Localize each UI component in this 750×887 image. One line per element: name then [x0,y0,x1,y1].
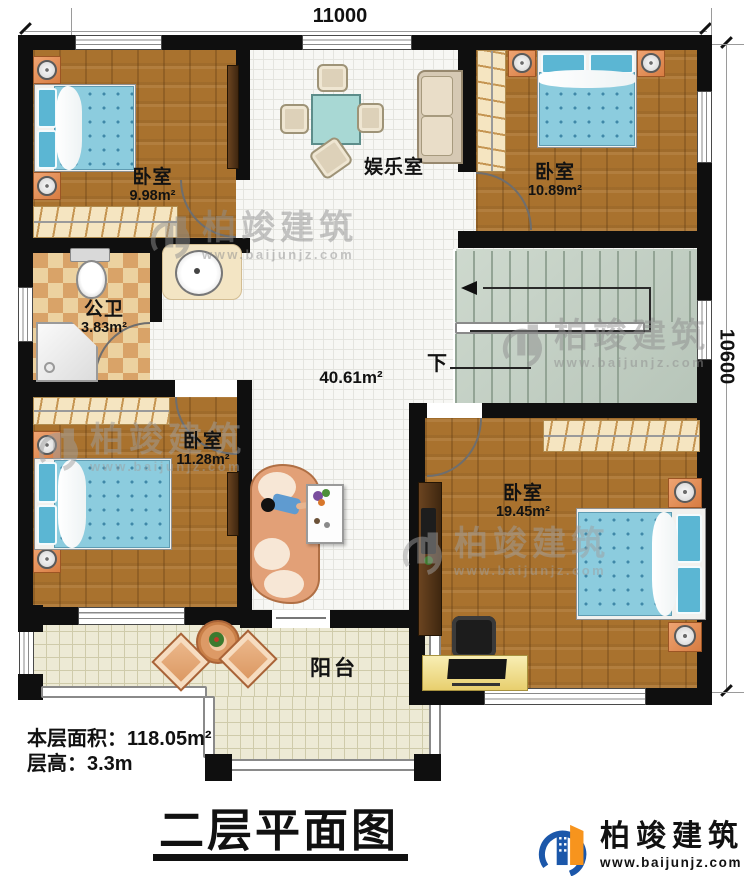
lamp-icon [37,60,57,80]
stair-handrail [455,322,645,334]
stair-path-line [649,287,651,332]
room-name: 卧室 [148,432,258,453]
pillow [676,514,702,563]
dimension-line-top [25,31,707,32]
brand-url: www.baijunjz.com [600,855,744,870]
pillow [37,462,57,503]
desk-plant-icon [424,556,433,565]
brand-block: 柏竣建筑 www.baijunjz.com [536,820,744,876]
room-area: 19.45m² [468,505,578,521]
hall-area-label: 40.61m² [305,369,397,387]
room-area: 9.98m² [100,189,205,205]
dimension-ext-line [712,44,744,45]
bedroom-br-door-opening [427,403,482,418]
title-underline [153,854,408,861]
basin-drain-icon [194,268,200,274]
room-area: 11.28m² [148,453,258,469]
stairs-down-line [450,367,531,369]
wardrobe [543,420,700,452]
sofa-cushion [421,76,453,116]
office-chair [452,616,496,658]
window [697,300,712,360]
wardrobe [33,397,170,425]
person-head [261,498,275,512]
dimension-tick-icon [699,22,712,35]
tv-icon [447,659,507,679]
toilet [76,260,107,299]
wall [150,253,162,322]
window [75,35,162,50]
sofa-cushion [254,538,290,570]
room-area: 3.83m² [58,321,150,337]
dimension-ext-line [711,8,712,35]
lamp-icon [674,625,696,647]
bed-sheet-fold [56,86,82,170]
bed-sheet-fold [58,460,86,548]
room-name: 卧室 [468,484,578,505]
pillow [37,88,57,128]
lamp-icon [37,549,57,569]
stair-direction-arrow-icon [461,281,477,295]
tv-cabinet [227,65,239,169]
bedroom-bl-door-opening [175,380,237,397]
wardrobe [477,50,506,172]
balcony-window-rail [19,630,34,676]
balcony-floor-lower [214,697,437,762]
dimension-height: 10600 [715,317,738,397]
lamp-icon [512,53,532,73]
chair [317,64,348,92]
window [78,607,185,625]
sofa-cushion [264,570,304,598]
flower-icon [318,499,325,506]
room-name: 娱乐室 [348,158,440,179]
bed-sheet-fold [539,70,635,88]
dimension-tick-icon [19,22,32,35]
sofa-cushion [421,116,453,156]
room-label-bedroom-br: 卧室 19.45m² [468,484,578,520]
balcony-door-leaf [276,617,326,619]
balcony-post [205,754,232,781]
flower-icon [322,489,330,497]
balcony-railing [230,759,420,771]
monitor-icon [421,508,436,554]
wall [458,231,712,248]
lamp-icon [37,176,57,196]
lamp-icon [641,53,661,73]
room-label-bedroom-bl: 卧室 11.28m² [148,432,258,468]
table-item-icon [324,522,330,528]
stair-path-line [483,287,651,289]
window [18,287,33,342]
room-name: 卧室 [500,163,610,184]
room-area: 10.89m² [500,184,610,200]
dimension-ext-line [71,8,72,35]
room-name: 卧室 [100,168,205,189]
dimension-ext-line [712,692,744,693]
window [302,35,412,50]
wardrobe [33,206,178,238]
table-item-icon [314,518,320,524]
balcony-door-opening [272,610,330,628]
bed-sheet-fold [652,512,678,616]
shower-drain-icon [44,362,55,373]
lamp-icon [37,435,57,455]
balcony-post [414,754,441,781]
pillow [37,505,57,545]
room-label-bedroom-tl: 卧室 9.98m² [100,168,205,204]
pillow [37,130,57,169]
floor-plan: 柏竣建筑 www.baijunjz.com 柏竣建筑 www.baijunjz.… [0,0,750,887]
tv-cabinet [227,472,239,536]
room-label-bedroom-tr: 卧室 10.89m² [500,163,610,199]
stairs-down-label: 下 [424,354,450,376]
chair [280,104,309,134]
balcony-post [18,674,43,700]
room-name: 公卫 [58,300,150,321]
room-label-bathroom: 公卫 3.83m² [58,300,150,336]
brand-logo-icon [536,820,592,876]
dimension-width: 11000 [270,5,410,28]
soundbar-icon [452,683,500,686]
plant-icon [208,631,225,648]
room-label-balcony: 阳台 [288,658,380,681]
pillow [676,566,702,614]
room-label-entertainment: 娱乐室 [348,158,440,179]
wall [240,610,425,628]
floor-height-text: 层高：3.3m [27,747,133,776]
lamp-icon [674,481,696,503]
window [697,91,712,163]
chair [357,103,384,133]
page-title: 二层平面图 [148,794,410,859]
brand-name: 柏竣建筑 [600,820,744,853]
stair-path-line [470,330,651,332]
